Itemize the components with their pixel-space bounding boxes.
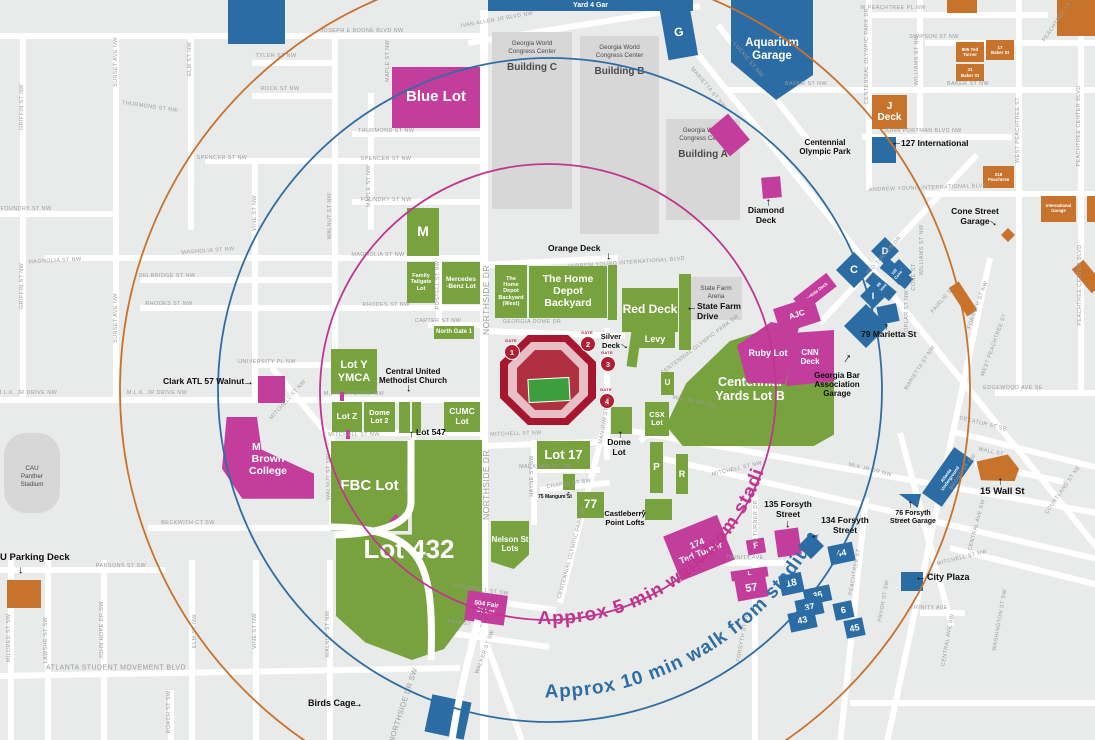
diamond-deck-arrow: → — [762, 197, 773, 208]
birds-cage-lot — [424, 694, 471, 739]
red-deck-label: Red Deck — [623, 303, 678, 316]
lot-174-ted-turner-label: 174 Ted Turner — [674, 530, 724, 566]
home-depot-backyard-west-label: The Home Depot Backyard (West) — [498, 276, 523, 307]
north-gate-1: North Gate 1 — [434, 326, 474, 339]
levy-lot-label: Levy — [645, 334, 666, 344]
street-label: SPENCER ST NW — [197, 155, 248, 161]
street-label: POSTELL ST NW — [435, 261, 441, 310]
street-label: FAIRLIE ST — [930, 285, 956, 314]
gwcc-building-c-name: Building C — [507, 62, 557, 73]
blue-topleft-lot — [228, 0, 285, 44]
international-garage: International Garage — [1041, 196, 1076, 222]
lot-17-baker-st-label: 17 Baker St — [991, 45, 1009, 55]
street-label: FORSYTH ST SW — [736, 612, 751, 662]
dome-lot-label: Dome Lot — [602, 438, 636, 458]
street-label: TED TURNER DR — [753, 500, 759, 550]
family-tailgate-lot-label: Family Tailgate Lot — [411, 273, 432, 292]
forsyth-135-label: 135 Forsyth Street — [762, 500, 814, 520]
street-v — [253, 560, 259, 740]
lot-y-ymca: Lot Y YMCA — [331, 349, 377, 394]
street-label: MAGNOLIA ST NW — [28, 257, 81, 266]
gate-1-caption: GATE — [505, 338, 517, 343]
street-label: ROACH ST SW — [166, 691, 172, 734]
street-label: VINE ST NW — [252, 613, 258, 649]
birds-cage-arrow: → — [352, 699, 363, 710]
street-label: GRIFFIN ST NW — [19, 84, 25, 130]
lot-18-label: 18 — [785, 577, 798, 590]
marietta-79-arrow: → — [880, 321, 891, 332]
orange-deck-arrow: → — [604, 251, 615, 262]
gwcc-building-b-label: Georgia World Congress Center — [596, 44, 644, 60]
street-label: WILLIAMS ST NW — [914, 35, 920, 86]
u-parking-deck-lot — [7, 580, 41, 608]
lot-z: Lot Z — [332, 402, 362, 432]
street-diagonal — [949, 428, 1095, 473]
street-h — [252, 93, 338, 99]
street-label: MAPLE ST NW — [366, 165, 372, 207]
lot-18: 18 — [778, 572, 805, 596]
street-label: TRINITY AVE — [910, 605, 947, 611]
cau-panther-stadium: CAU Panther Stadium — [4, 433, 60, 513]
street-label: WEST PEACHTREE ST — [1015, 97, 1021, 163]
forsyth-76-label: 76 Forsyth Street Garage — [888, 510, 938, 526]
street-label: BAKER ST NW — [785, 81, 827, 87]
lot-6-label: 6 — [840, 605, 847, 616]
nelson-st-lots-label: Nelson St Lots — [492, 536, 529, 554]
j-deck-label: J Deck — [878, 101, 902, 123]
street-label: CENTRAL AVE SW — [967, 499, 987, 552]
gate-3-marker: 3 — [600, 356, 616, 372]
georgia-bar-label: Georgia Bar Association Garage — [808, 371, 866, 399]
street-label: MAGNOLIA ST NW — [351, 252, 404, 258]
street-label: MITCHELL ST NW — [490, 430, 542, 438]
family-tailgate-lot: Family Tailgate Lot — [407, 262, 435, 303]
forsyth-134-label: 134 Forsyth Street — [818, 516, 872, 536]
street-label: VINE ST NW — [252, 195, 258, 231]
cone-street-garage-lot — [1001, 228, 1015, 242]
street-label: PRYOR ST SW — [877, 580, 890, 623]
lot-17-label: Lot 17 — [544, 448, 582, 463]
street-label: MAPLE ST NW — [385, 40, 391, 82]
lot-135-forsyth — [774, 527, 802, 557]
yard-4-garage: Yard 4 Gar — [488, 0, 693, 11]
lot-r-label: R — [679, 469, 686, 479]
csx-lot-label: CSX Lot — [649, 411, 664, 428]
lot-m: M — [407, 208, 439, 256]
lot-44: 44 — [827, 542, 855, 566]
lot-m-label: M — [417, 224, 429, 240]
street-label: BECKWITH CT SW — [161, 520, 215, 526]
lot-43-label: 43 — [797, 615, 809, 627]
cumc-lot-label: CUMC Lot — [449, 407, 475, 426]
gate-3-caption: GATE — [601, 350, 613, 355]
lot-547-label: Lot 547 — [416, 428, 446, 438]
birds-cage-label: Birds Cage — [308, 698, 356, 708]
lot-44-label: 44 — [836, 548, 848, 560]
clark-atl-arrow: → — [243, 377, 254, 388]
state-farm-drive-arrow: → — [686, 304, 697, 315]
street-label: PEACHTREE CENTER BLVD — [1076, 85, 1082, 166]
lot-17-baker-st: 17 Baker St — [986, 40, 1014, 60]
street-label: GRIFFIN ST NW — [19, 263, 25, 309]
orange-edge-east — [1087, 196, 1095, 222]
lot-z-label: Lot Z — [337, 412, 358, 422]
cumc-lot: CUMC Lot — [444, 402, 480, 432]
lot-c-label: C — [850, 264, 858, 276]
dome-lot-arrow: → — [614, 429, 625, 440]
street-label: WALNUT ST NW — [327, 193, 333, 240]
street-label: PEACHTREE CENTER BLVD — [1077, 244, 1083, 325]
blue-lot-label: Blue Lot — [406, 89, 466, 106]
street-diagonal — [450, 630, 550, 650]
street-label: W PEACHTREE PL NW — [860, 5, 926, 11]
street-label: PARSONS ST SW — [96, 563, 146, 569]
street-label: TRINITY AVE — [726, 555, 763, 561]
north-gate-1-label: North Gate 1 — [436, 329, 472, 336]
clark-atl-label: Clark ATL 57 Walnut — [163, 377, 244, 387]
lot-31-baker-st-label: 31 Baker St — [961, 67, 979, 77]
street-label: WALL ST — [978, 446, 1005, 457]
lot-174-ted-turner: 174 Ted Turner — [663, 515, 735, 581]
u-parking-arrow: → — [16, 565, 27, 576]
street-label: MILDRED ST SW — [6, 614, 12, 663]
street-label: UNIVERSITY PL NW — [238, 359, 296, 365]
fbc-lot-label: FBC Lot — [340, 478, 398, 495]
mercedes-benz-lot: Mercedes -Benz Lot — [442, 262, 480, 304]
lot-u-label: U — [665, 379, 671, 388]
street-label: WILLIAMS ST NW — [919, 225, 925, 276]
morris-brown-college-label: Morris Brown College — [249, 442, 287, 477]
street-label: M.L.K. JR DRIVE NW — [127, 390, 187, 396]
red-deck: Red Deck — [622, 288, 678, 332]
street-label: SUNSET AVE NW — [113, 37, 119, 87]
street-label: ROCK ST NW — [261, 86, 300, 92]
street-label: IVAN ALLEN JR BLVD NW — [460, 11, 534, 30]
j-deck: J Deck — [872, 95, 907, 129]
orange-deck-label: Orange Deck — [548, 244, 600, 254]
street-label: FOUNDRY ST NW — [0, 206, 51, 212]
lot-y-ymca-label: Lot Y YMCA — [338, 359, 370, 384]
city-plaza-arrow: → — [915, 574, 926, 585]
intl-127-label: 127 International — [901, 139, 969, 149]
centennial-olympic-park-label: Centennial Olympic Park — [792, 138, 858, 156]
home-depot-backyard-west: The Home Depot Backyard (West) — [495, 265, 527, 318]
silver-deck-lot — [627, 330, 642, 367]
lot-i-label: I — [872, 291, 875, 301]
gate-2-marker: 2 — [580, 336, 596, 352]
street-label: M.L.K. JR DRIVE NW — [324, 391, 384, 397]
cau-panther-stadium-label: CAU Panther Stadium — [20, 465, 43, 489]
gate-1-marker: 1 — [504, 344, 520, 360]
lot-432-label: Lot 432 — [363, 535, 454, 564]
street-label: JOHN HOPE DR SW — [99, 601, 105, 659]
street-v — [113, 36, 119, 397]
street-label: HAYNE ST SW — [529, 455, 535, 497]
lot-g-label: G — [673, 26, 685, 41]
street-label: MITCHELL ST NW — [328, 432, 380, 438]
blue-lot: Blue Lot — [392, 67, 480, 128]
street-label: GEORGIA DOME DR — [503, 319, 562, 325]
street-label: LAWSHE ST SW — [43, 617, 49, 663]
gwcc-building-c: Georgia World Congress CenterBuilding C — [492, 32, 572, 209]
street-label: RHODES ST NW — [362, 302, 409, 308]
street-label: WALNUT ST SW — [326, 454, 332, 500]
street-label: THURMOND ST NW — [122, 100, 179, 114]
street-label: CENTENNIAL OLYMPIC PARK DR — [557, 505, 588, 599]
street-label: MARIETTA ST NW — [903, 345, 936, 392]
street-label: BAKER ST NW — [947, 81, 989, 87]
street-label: JOHN PORTMAN BLVD NW — [884, 128, 962, 134]
lot-g: G — [660, 6, 698, 60]
orange-top-small — [947, 0, 977, 13]
state-farm-drive-label: State Farm Drive — [697, 302, 741, 322]
street-label: WALNUT ST NW — [325, 611, 331, 658]
lot-31-baker-st: 31 Baker St — [956, 64, 984, 81]
morris-brown-college: Morris Brown College — [222, 417, 314, 503]
home-depot-backyard-label: The Home Depot Backyard — [529, 274, 607, 309]
lot-218-peachtree: 218 Peachtree — [983, 166, 1014, 188]
central-united-arrow: → — [404, 383, 415, 394]
lot-57-label: 57 — [744, 581, 758, 595]
street-label: NORTHSIDE DR — [481, 450, 491, 520]
street-label: ATLANTA STUDENT MOVEMENT BLVD — [46, 665, 186, 672]
street-label: TYLER ST NW — [255, 53, 296, 59]
georgia-bar-arrow: → — [835, 347, 854, 366]
street-label: WEST PEACHTREE ST — [980, 313, 1008, 377]
atlanta-underground: Atlanta Underground — [922, 447, 974, 507]
dome-lot-2: Dome Lot 2 — [364, 402, 395, 432]
street-label: M.L.K. JR DRIVE NW — [0, 390, 57, 396]
street-label: WASHINGTON ST SW — [992, 589, 1009, 652]
street-label: THURMOND ST NW — [358, 128, 415, 134]
csx-lot: CSX Lot — [645, 402, 669, 436]
ruby-lot-label: Ruby Lot — [749, 348, 788, 358]
street-label: CENTENNIAL OLYMPIC PARK DR — [864, 8, 870, 104]
home-depot-backyard: The Home Depot Backyard — [529, 266, 607, 318]
street-label: RHODES ST NW — [145, 301, 192, 307]
mercedes-benz-lot-label: Mercedes -Benz Lot — [446, 276, 476, 291]
street-h — [252, 60, 338, 66]
wall-15-label: 15 Wall St — [980, 487, 1025, 498]
orange-deck-lot — [608, 265, 617, 320]
lot-p: P — [650, 442, 663, 493]
lot-218-peachtree-label: 218 Peachtree — [988, 172, 1010, 182]
gate-4-caption: GATE — [600, 387, 612, 392]
cnn-deck-label: CNN Deck — [800, 349, 819, 367]
wall-15-arrow: → — [994, 476, 1005, 487]
parking-map: Georgia World Congress CenterBuilding CG… — [0, 0, 1095, 740]
dome-lot-2-label: Dome Lot 2 — [369, 409, 390, 426]
city-plaza-label: City Plaza — [927, 572, 970, 582]
street-label: ELM ST NW — [187, 42, 193, 76]
street-v — [1016, 0, 1022, 390]
street-label: NORTHSIDE DR SW — [387, 667, 420, 740]
street-label: EDGEWOOD AVE SE — [983, 385, 1043, 391]
street-label: ELM ST NW — [192, 614, 198, 648]
clark-atl-57-walnut-lot — [258, 376, 285, 403]
street-label: SPENCER ST NW — [361, 156, 412, 162]
lot-43: 43 — [787, 608, 817, 632]
street-h — [850, 700, 1095, 706]
street-v — [189, 560, 195, 740]
street-label: DELBRIDGE ST NW — [139, 273, 196, 279]
state-farm-arena-label: State Farm Arena — [700, 285, 731, 301]
international-garage-label: International Garage — [1046, 204, 1071, 213]
stadium-field — [527, 377, 570, 403]
lot-r: R — [676, 454, 688, 494]
forsyth-135-arrow: → — [783, 519, 794, 530]
lot-p-label: P — [653, 462, 660, 473]
diamond-deck-lot — [761, 176, 782, 199]
forsyth-76-arrow: → — [904, 499, 915, 510]
street-label: JOSEPH E BOONE BLVD NW — [320, 28, 403, 34]
diamond-deck-label: Diamond Deck — [744, 206, 788, 226]
gate-2-caption: GATE — [581, 330, 593, 335]
ajc-lot-label: AJC — [788, 308, 806, 321]
lot-57: 57 — [734, 574, 768, 601]
lot-805-ted-turner: 805 Ted Turner — [956, 42, 984, 62]
lot-805-ted-turner-label: 805 Ted Turner — [962, 47, 978, 57]
gwcc-building-a-name: Building A — [678, 149, 728, 160]
gwcc-building-b-name: Building B — [595, 66, 645, 77]
street-label: SUNSET AVE NW — [113, 293, 119, 343]
u-parking-deck-label: U Parking Deck — [0, 553, 70, 564]
aquarium-garage-label: Aquarium Garage — [745, 37, 799, 63]
lot-45: 45 — [843, 617, 865, 639]
intl-127-arrow: → — [891, 139, 902, 150]
street-label: NORTHSIDE DR — [481, 265, 491, 335]
street-label: MARKHAM ST SW — [519, 464, 571, 470]
gwcc-building-c-label: Georgia World Congress Center — [508, 40, 556, 56]
street-label: CONE ST — [911, 263, 917, 290]
lot-547-arrow: → — [405, 429, 416, 440]
gwcc-building-b: Georgia World Congress CenterBuilding B — [580, 36, 659, 234]
lot-45-label: 45 — [849, 622, 861, 634]
street-label: CENTRAL AVE SW — [940, 613, 955, 666]
nelson-st-lots: Nelson St Lots — [491, 521, 529, 569]
lot-504-fair-st-label: 504 Fair St Lot — [473, 599, 499, 617]
yard-4-garage-label: Yard 4 Gar — [573, 2, 608, 10]
street-label: CARTER ST NW — [415, 318, 461, 324]
